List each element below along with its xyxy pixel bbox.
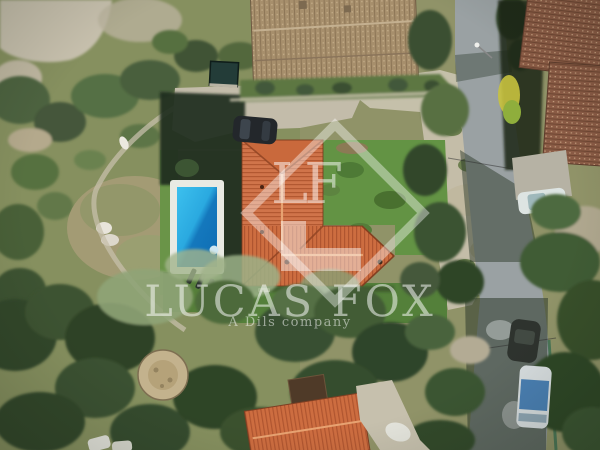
round-stone-patio (138, 350, 188, 400)
dark-car (506, 318, 542, 364)
white-van (516, 365, 552, 429)
neighbor-roof-north (250, 0, 418, 85)
garden-shed (209, 61, 238, 87)
aerial-scene (0, 0, 600, 450)
pool-bush (175, 159, 199, 177)
aerial-photo: LF LUCAS FOX A Dils company (0, 0, 600, 450)
black-car (232, 115, 278, 145)
